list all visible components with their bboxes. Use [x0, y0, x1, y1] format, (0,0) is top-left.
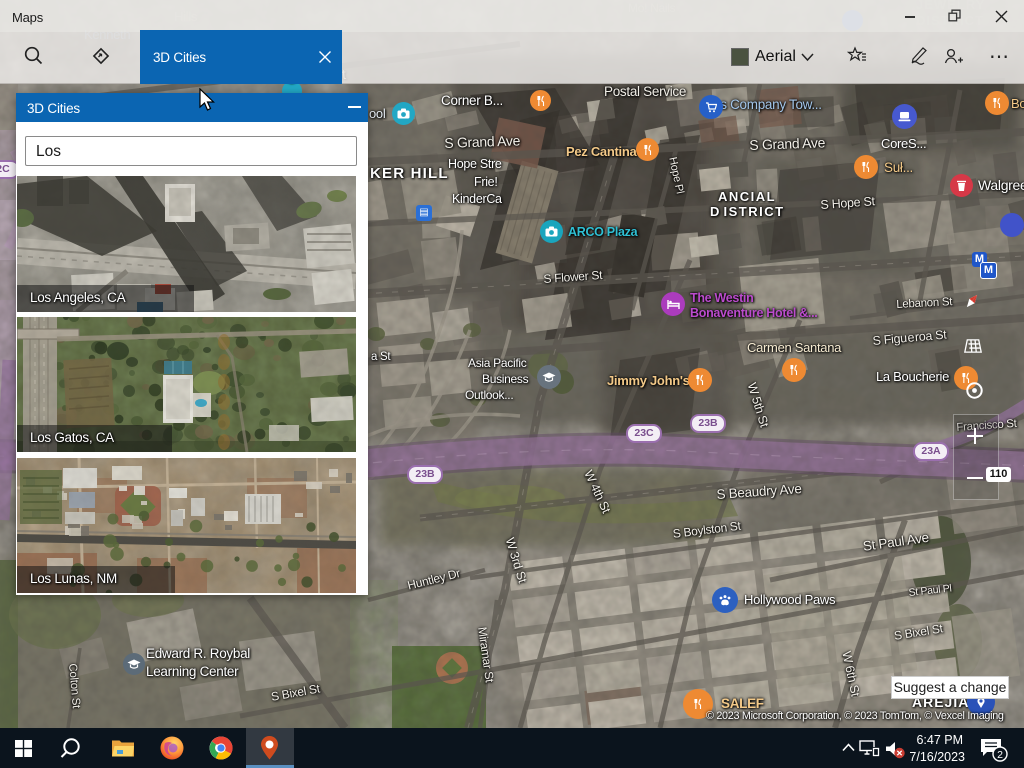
- svg-text:2: 2: [997, 749, 1003, 761]
